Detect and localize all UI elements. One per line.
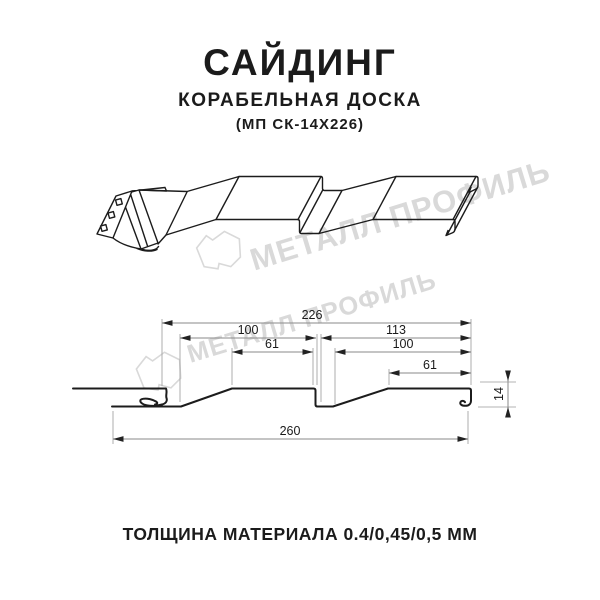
dimension-label-226: 226 (302, 308, 323, 322)
dimension-label-14: 14 (492, 387, 506, 401)
dimension-label-113: 113 (386, 323, 406, 337)
cross-section-profile (73, 389, 471, 407)
dimension-label-260: 260 (280, 424, 301, 438)
cross-section-drawing: 226 100 113 61 100 61 260 14 (73, 308, 516, 444)
dimension-label-100-left: 100 (238, 323, 259, 337)
dimension-lines (113, 323, 508, 439)
dimension-label-61-left: 61 (265, 337, 279, 351)
technical-drawing: 226 100 113 61 100 61 260 14 (0, 0, 600, 600)
product-diagram-page: САЙДИНГ КОРАБЕЛЬНАЯ ДОСКА (МП СК-14Х226)… (0, 0, 600, 600)
profile-3d-drawing (97, 177, 478, 252)
dimension-label-100-right: 100 (393, 337, 414, 351)
dimension-label-61-right: 61 (423, 358, 437, 372)
